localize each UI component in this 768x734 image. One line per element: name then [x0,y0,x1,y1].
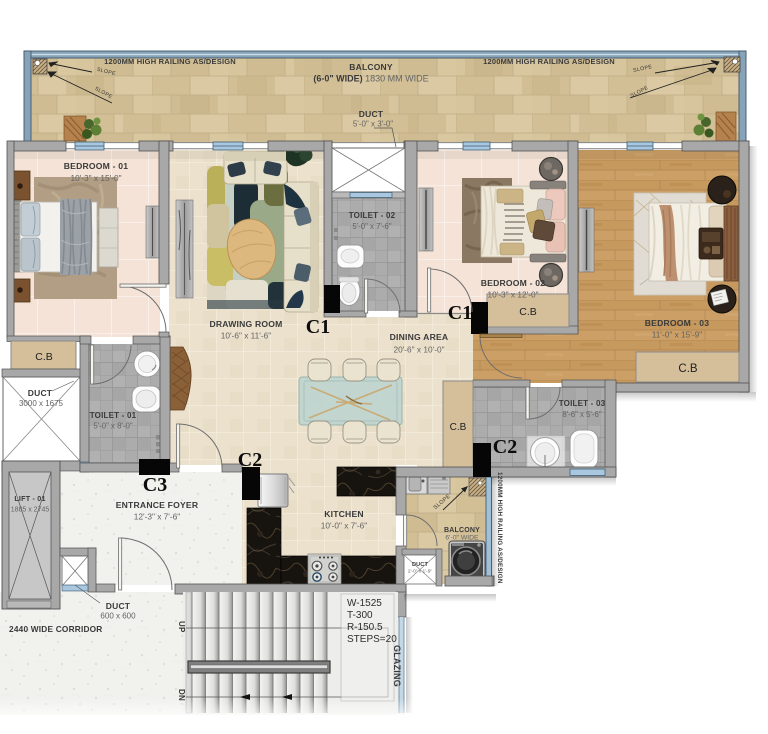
svg-text:TOILET - 03: TOILET - 03 [559,399,606,408]
svg-text:10'-0" x 7'-6": 10'-0" x 7'-6" [321,521,367,531]
svg-text:1200MM HIGH RAILING AS/DESIGN: 1200MM HIGH RAILING AS/DESIGN [104,57,236,66]
svg-text:11'-0" x 15'-9": 11'-0" x 15'-9" [652,330,702,340]
svg-text:C2: C2 [493,436,517,458]
svg-text:TOILET - 02: TOILET - 02 [349,211,396,220]
svg-text:BEDROOM - 03: BEDROOM - 03 [645,318,709,328]
svg-text:5'-0" x 3'-0": 5'-0" x 3'-0" [353,120,393,129]
svg-text:DRAWING ROOM: DRAWING ROOM [209,319,282,329]
svg-text:KITCHEN: KITCHEN [324,509,364,519]
svg-text:STEPS=20: STEPS=20 [347,634,397,645]
svg-text:GLAZING: GLAZING [392,645,402,687]
svg-text:1200MM HIGH RAILING AS/DESIGN: 1200MM HIGH RAILING AS/DESIGN [483,57,615,66]
svg-text:C.B: C.B [519,306,537,318]
svg-text:6'-0" WIDE: 6'-0" WIDE [445,535,479,542]
svg-text:DUCT: DUCT [28,388,53,398]
svg-text:W-1525: W-1525 [347,598,382,609]
svg-text:10'-6" x 11'-6": 10'-6" x 11'-6" [221,331,271,341]
svg-text:20'-6" x 10'-0": 20'-6" x 10'-0" [393,345,444,355]
svg-text:DUCT: DUCT [412,562,429,568]
svg-text:BEDROOM - 01: BEDROOM - 01 [64,161,128,171]
svg-text:DUCT: DUCT [106,601,131,611]
svg-text:1200MM HIGH RAILING AS/DESIGN: 1200MM HIGH RAILING AS/DESIGN [496,472,503,584]
svg-text:C.B: C.B [35,351,53,363]
svg-text:ENTRANCE FOYER: ENTRANCE FOYER [116,500,199,510]
svg-text:2'-0" x 1'-9": 2'-0" x 1'-9" [408,569,432,575]
svg-text:10'-3" x 12'-0": 10'-3" x 12'-0" [487,290,538,300]
svg-text:BALCONY: BALCONY [349,62,393,72]
svg-text:5'-0" x 8'-0": 5'-0" x 8'-0" [93,422,133,431]
svg-text:T-300: T-300 [347,610,373,621]
svg-text:C3: C3 [143,474,167,496]
svg-text:C2: C2 [238,449,262,471]
svg-text:600 x 600: 600 x 600 [100,612,136,621]
svg-text:R-150.5: R-150.5 [347,622,383,633]
svg-text:BEDROOM - 02: BEDROOM - 02 [481,278,545,288]
svg-text:(6-0" WIDE) 1830 MM WIDE: (6-0" WIDE) 1830 MM WIDE [313,74,428,84]
svg-text:LIFT - 01: LIFT - 01 [14,494,45,503]
svg-text:12'-3" x 7'-6": 12'-3" x 7'-6" [134,512,180,522]
svg-text:10'-3" x 15'-0": 10'-3" x 15'-0" [70,173,121,183]
svg-text:3000 x 1675: 3000 x 1675 [19,399,64,408]
svg-text:DINING AREA: DINING AREA [390,332,449,342]
svg-text:C.B: C.B [678,363,698,375]
svg-text:BALCONY: BALCONY [444,527,480,534]
svg-text:C1: C1 [448,302,472,324]
svg-text:1885 x 2745: 1885 x 2745 [11,507,50,514]
svg-text:8'-6" x 5'-6": 8'-6" x 5'-6" [562,410,602,419]
svg-text:UP: UP [177,621,186,633]
svg-text:DUCT: DUCT [359,109,384,119]
svg-text:5'-0" x 7'-6": 5'-0" x 7'-6" [352,222,392,231]
svg-text:C1: C1 [306,316,330,338]
svg-text:C.B: C.B [450,422,467,433]
svg-text:2440 WIDE CORRIDOR: 2440 WIDE CORRIDOR [9,624,103,634]
svg-text:TOILET - 01: TOILET - 01 [90,411,137,420]
